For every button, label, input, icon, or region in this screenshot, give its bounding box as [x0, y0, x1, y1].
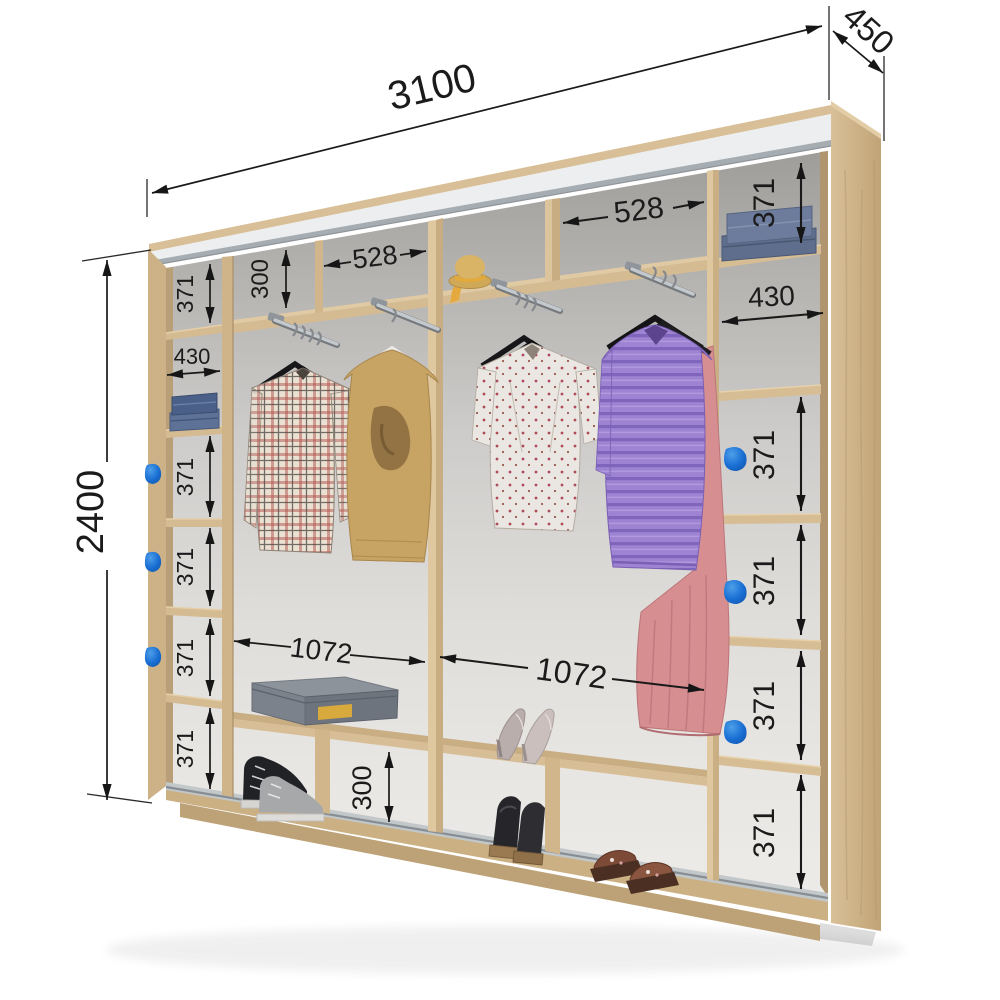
dim-left-s4: 371 — [172, 548, 198, 586]
top-cubby-divider-right-lit — [545, 199, 552, 282]
dim-top-left-cubby: 528 — [351, 239, 399, 274]
bottom-cubby-divider-right — [545, 757, 560, 854]
handle-left-1 — [145, 464, 161, 484]
divider-center-lit — [428, 220, 436, 832]
top-cubby-divider-left — [315, 240, 323, 313]
dim-right-s3: 371 — [748, 430, 781, 480]
dim-left-s3: 371 — [172, 458, 198, 496]
dim-left-s6: 371 — [172, 730, 198, 768]
dim-right-width: 430 — [747, 280, 795, 313]
dim-right-s5: 371 — [748, 681, 781, 731]
dim-bottom-height: 300 — [347, 765, 377, 810]
bottom-cubby-divider-left — [315, 729, 330, 814]
dim-right-s1: 371 — [748, 178, 781, 228]
dim-top-height: 300 — [247, 259, 274, 299]
wardrobe-diagram: 3100 450 2400 371 430 371 371 — [0, 0, 1000, 1000]
dim-right-s4: 371 — [748, 556, 781, 606]
top-cubby-divider-right — [552, 198, 560, 281]
wardrobe-diagram-canvas: 3100 450 2400 371 430 371 371 — [0, 0, 1000, 1000]
dim-right-s6: 371 — [748, 808, 781, 858]
right-side-panel — [831, 106, 881, 931]
right-inner-wall — [820, 151, 828, 897]
handle-left-3 — [145, 647, 161, 667]
divider-left — [222, 256, 233, 797]
dim-left-s1: 371 — [172, 275, 198, 313]
dim-total-height-label: 2400 — [70, 470, 112, 555]
dim-left-width: 430 — [174, 344, 211, 369]
dim-left-s5: 371 — [172, 639, 198, 677]
folded-jeans — [170, 393, 219, 431]
divider-center — [436, 218, 443, 833]
left-side-panel — [148, 249, 166, 800]
handle-left-2 — [145, 552, 161, 572]
dim-top-right-cubby: 528 — [612, 191, 666, 230]
